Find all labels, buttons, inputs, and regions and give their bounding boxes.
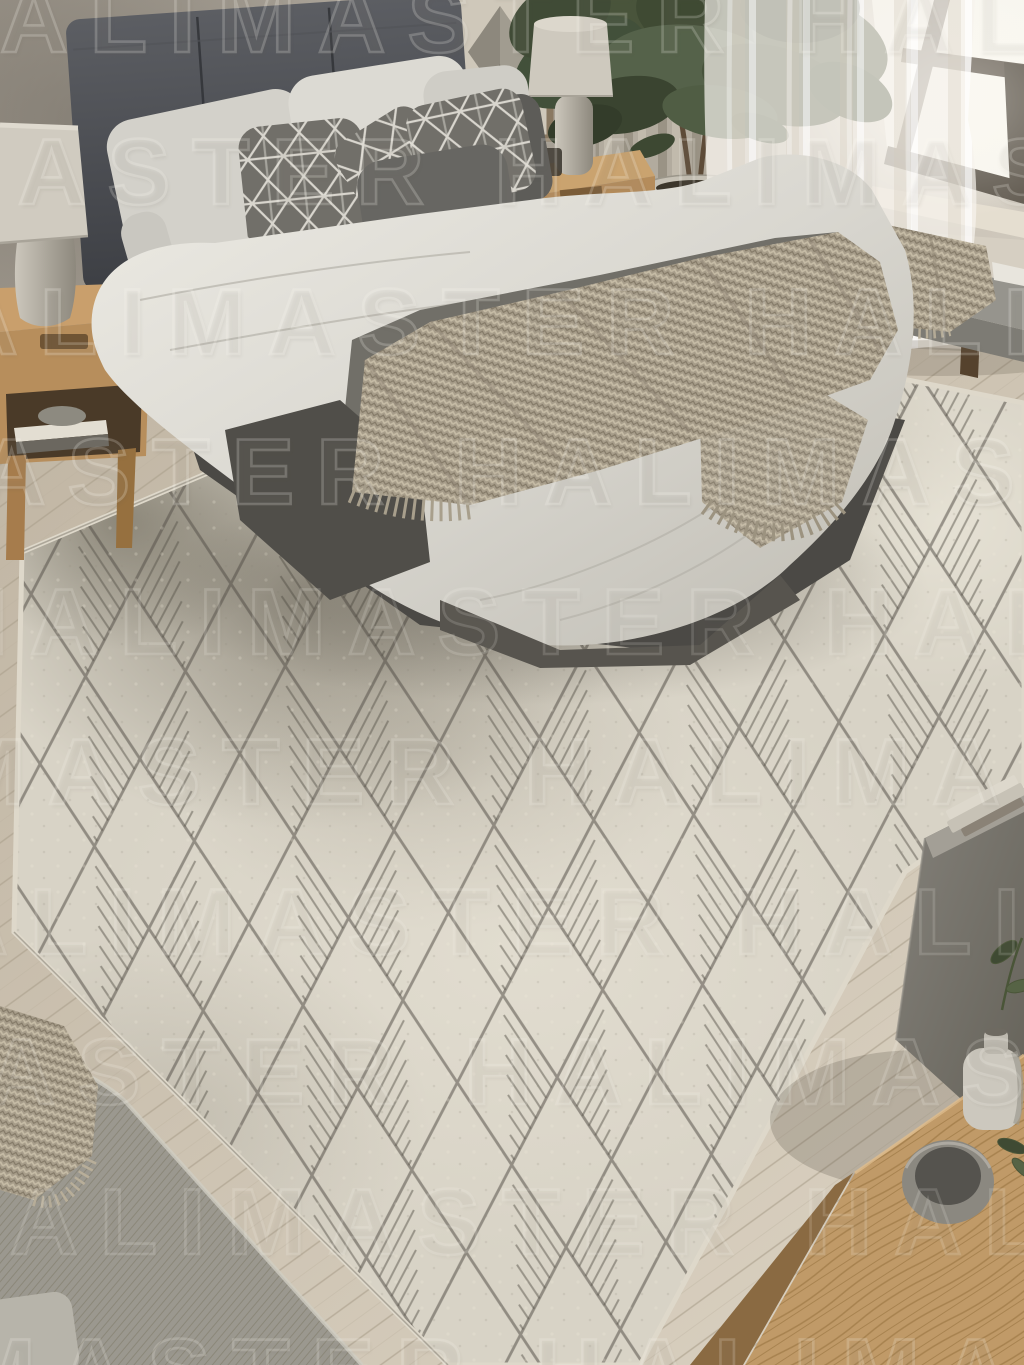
lamp-shade (0, 125, 88, 243)
sofa-cushion (0, 1290, 81, 1365)
lamp-shade (528, 24, 613, 96)
small-bowl (38, 406, 86, 426)
scene-svg (0, 0, 1024, 1365)
drawer-notch (40, 334, 88, 349)
bedroom-product-photo: HALIMASTER HALIMASTER HALIMASTER HALIMAS… (0, 0, 1024, 1365)
stone-bowl (902, 1140, 994, 1224)
nightstand-leg (6, 455, 26, 560)
